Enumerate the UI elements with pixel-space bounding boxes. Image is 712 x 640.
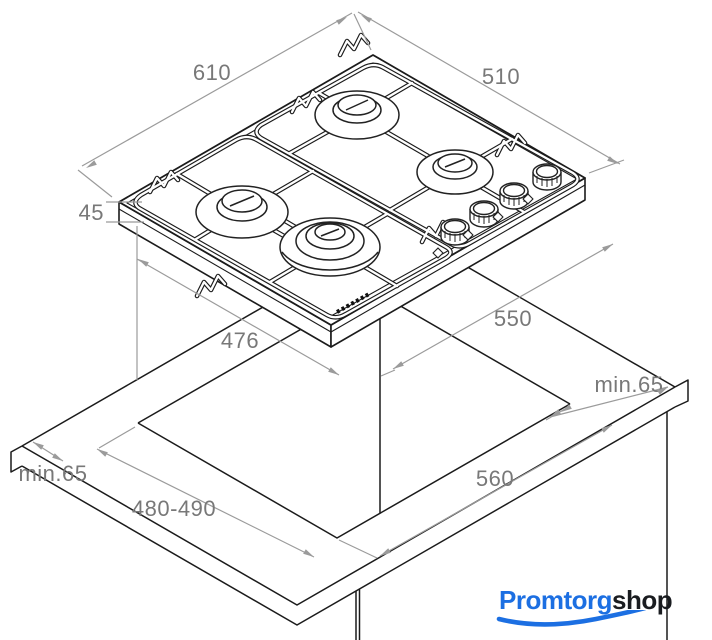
- knob-3: [500, 183, 528, 209]
- dim-hob-depth: 510: [482, 64, 520, 89]
- dimension-arrowhead: [602, 244, 613, 252]
- countertop-right-tip: [675, 380, 688, 407]
- burner-front-wok: [280, 218, 380, 276]
- dimension-arrowhead: [328, 367, 339, 375]
- dimension-arrowhead: [52, 453, 63, 461]
- dimension-arrowhead: [303, 549, 314, 557]
- dimension-arrowhead: [86, 160, 97, 168]
- countertop-front-top-edge: [22, 387, 675, 605]
- dimension-arrowhead: [138, 259, 149, 267]
- cabinet-front-edge: [356, 590, 360, 640]
- knob-4: [533, 164, 561, 190]
- installation-diagram-page: 610 510 45 476 550 min.65 560 480-490 mi…: [0, 0, 712, 640]
- dim-cutout-front: 560: [476, 466, 514, 491]
- dimension-arrowhead: [97, 449, 108, 457]
- dim-cutout-depth: 480-490: [132, 496, 216, 521]
- promtorgshop-logo: Promtorgshop: [499, 587, 672, 613]
- dim-clearance-right: min.65: [594, 372, 663, 397]
- dim-line-480-490: [97, 427, 314, 557]
- dim-hob-width: 610: [193, 60, 231, 85]
- dimension-arrowhead: [336, 17, 347, 25]
- knob-2: [470, 201, 498, 227]
- dimension-arrowhead: [361, 15, 372, 23]
- dimension-arrowhead: [393, 361, 404, 369]
- knob-1: [441, 219, 469, 245]
- dim-body-width: 476: [221, 328, 259, 353]
- technical-drawing: 610 510 45 476 550 min.65 560 480-490 mi…: [0, 0, 712, 640]
- logo-swoosh-icon: [496, 610, 648, 630]
- burner-back-center: [315, 91, 399, 139]
- dim-clearance-left: min.65: [18, 461, 87, 486]
- burner-right: [417, 150, 493, 194]
- dim-cutout-side: 550: [494, 306, 532, 331]
- burner-back-left: [196, 186, 288, 238]
- dim-hob-height: 45: [79, 200, 104, 225]
- dimension-arrowhead: [33, 442, 44, 450]
